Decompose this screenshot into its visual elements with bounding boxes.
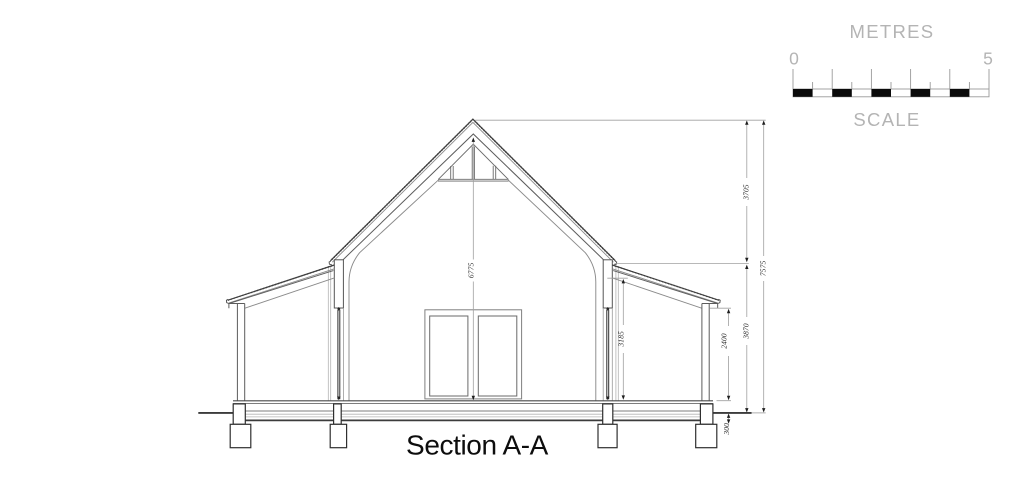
svg-text:SCALE: SCALE [853,109,920,130]
svg-text:7575: 7575 [759,260,768,276]
svg-text:Section A-A: Section A-A [406,430,549,461]
svg-text:6775: 6775 [467,262,476,278]
svg-text:0: 0 [789,49,799,69]
svg-text:3185: 3185 [617,331,626,348]
svg-text:300: 300 [722,423,731,436]
svg-text:3870: 3870 [742,323,751,340]
svg-text:2400: 2400 [720,333,729,349]
svg-text:METRES: METRES [850,21,935,42]
svg-text:3705: 3705 [742,184,751,201]
svg-text:5: 5 [983,49,993,69]
